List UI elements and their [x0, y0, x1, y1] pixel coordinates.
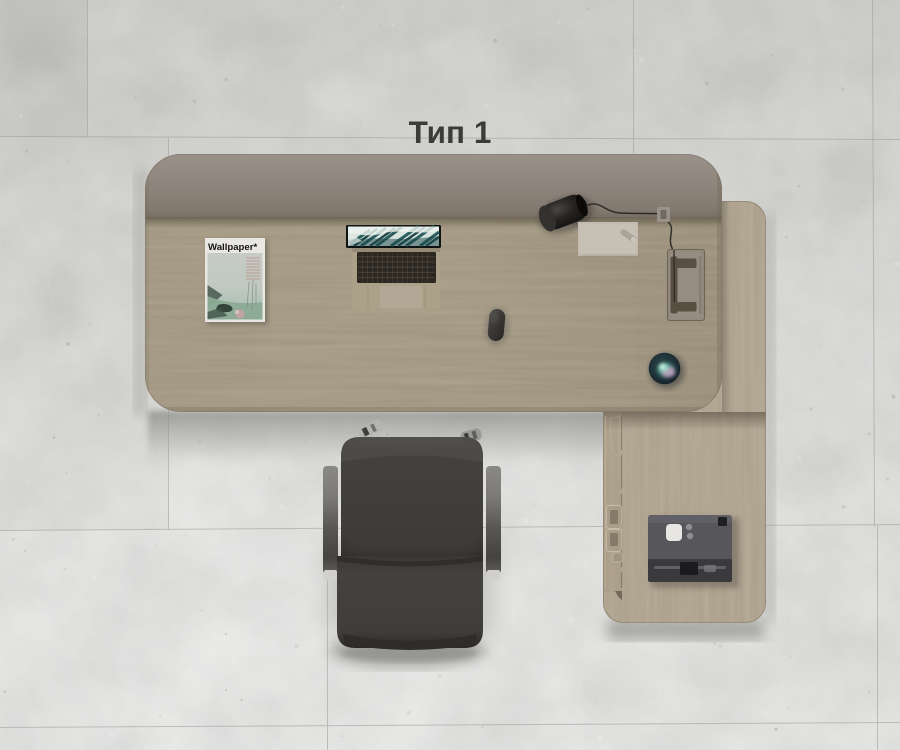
svg-text:Wallpaper*: Wallpaper* [208, 242, 257, 253]
svg-text:Тип 1: Тип 1 [409, 114, 492, 150]
